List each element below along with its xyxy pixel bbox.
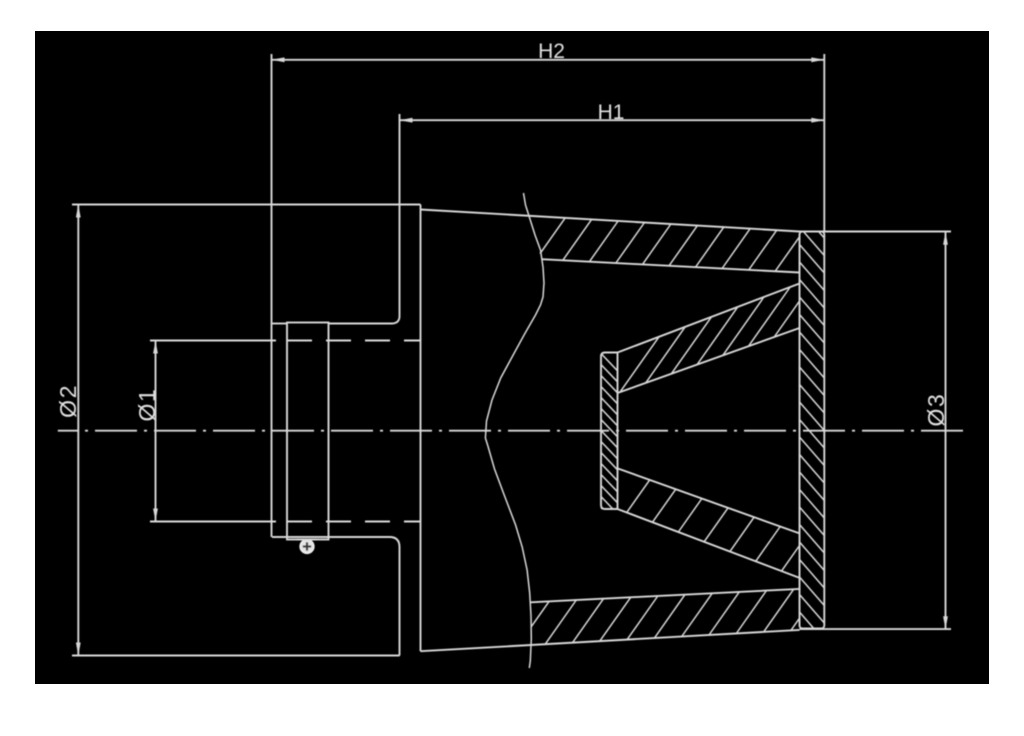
svg-text:Ø1: Ø1 bbox=[134, 387, 160, 421]
svg-text:Ø3: Ø3 bbox=[923, 392, 949, 426]
svg-text:Ø2: Ø2 bbox=[55, 384, 81, 418]
svg-text:H1: H1 bbox=[598, 101, 625, 124]
svg-text:H2: H2 bbox=[538, 40, 565, 63]
